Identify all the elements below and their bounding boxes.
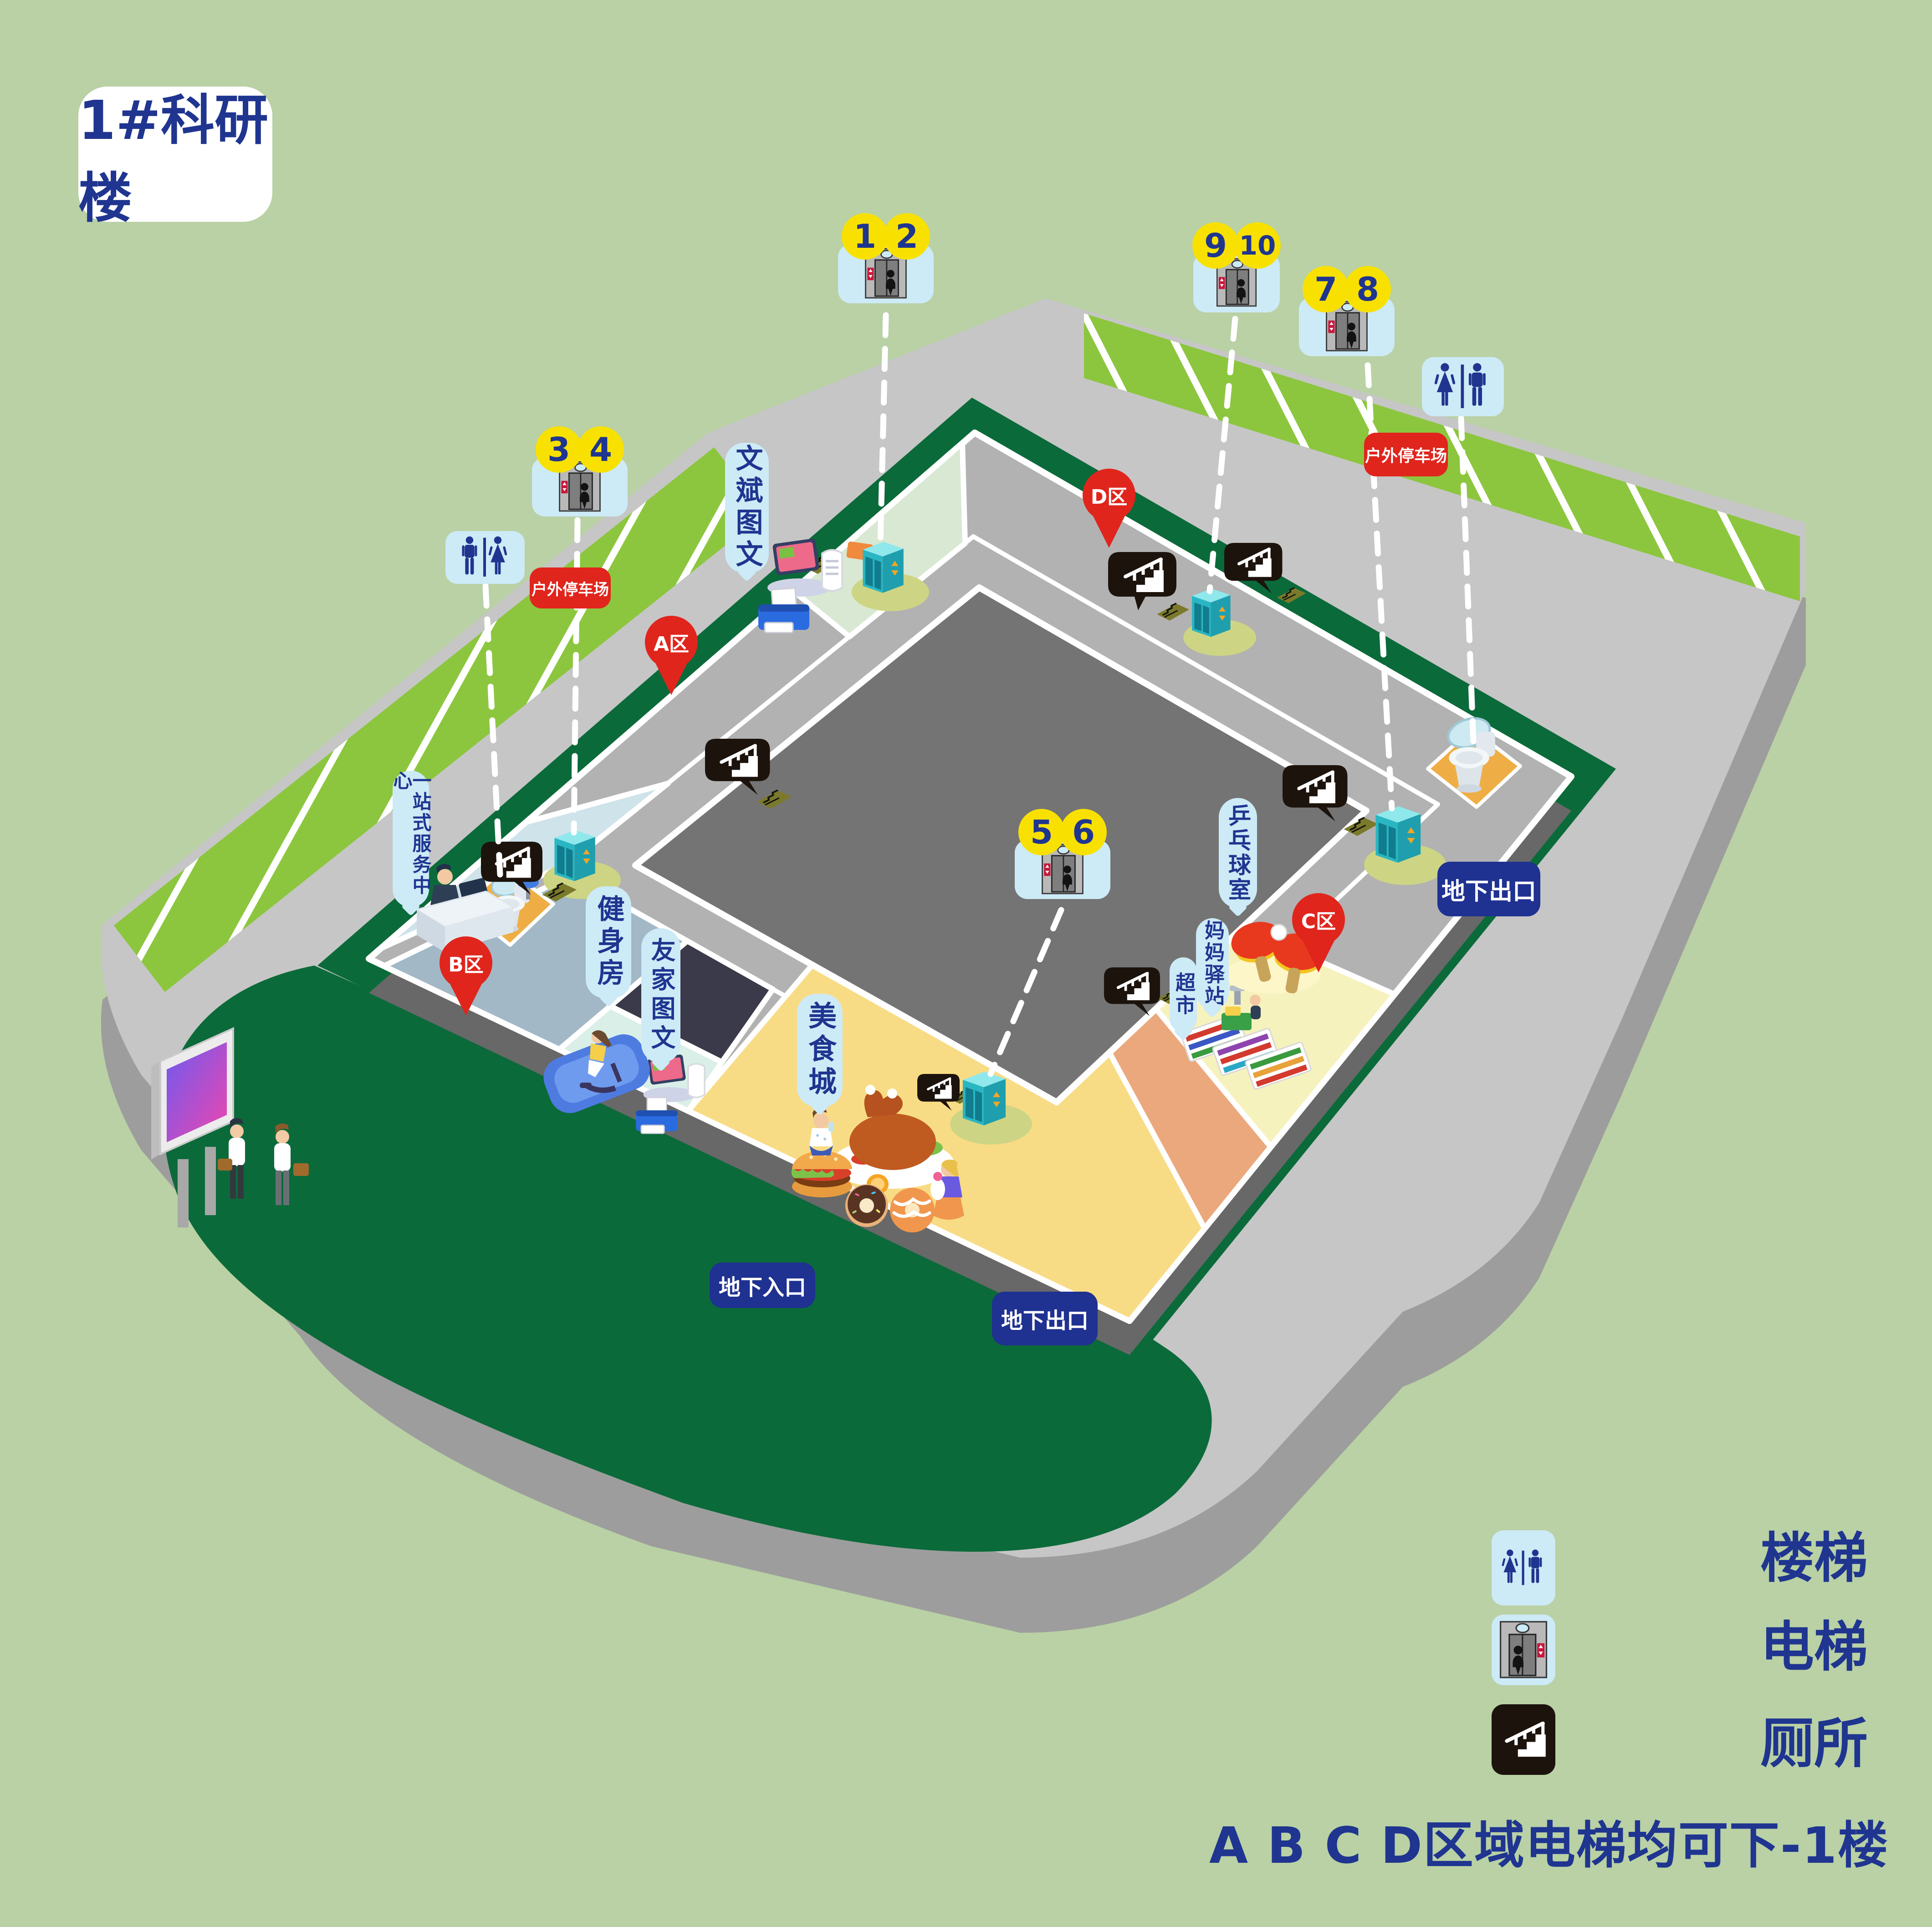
facility-label-gym[interactable]: 健身房 [586, 886, 631, 998]
exit-label-text: 地下出口 [1001, 1303, 1089, 1334]
legend-stairs-icon [1492, 1704, 1555, 1775]
elevator-marker-5-6[interactable]: 5 6 [1015, 809, 1110, 899]
zone-pin-a[interactable]: A区 [645, 616, 698, 695]
entrance-label-text: 地下入口 [719, 1269, 806, 1301]
toilet-marker-left[interactable] [445, 531, 525, 584]
facility-label-pingpong[interactable]: 乒乓球室 [1219, 798, 1257, 908]
elevator-number: 6 [1060, 809, 1107, 855]
legend-note: A B C D区域电梯均可下-1楼 [1209, 1804, 1901, 1877]
facility-label-service-center[interactable]: 一站式服务中心 [393, 771, 429, 907]
facility-text: 健身房 [595, 894, 622, 990]
elevator-number: 5 [1018, 809, 1065, 855]
toilet-icon [1425, 361, 1501, 412]
facility-text: 美食城 [806, 1001, 834, 1099]
lift-3d-d [1192, 588, 1231, 637]
elevator-marker-9-10[interactable]: 9 10 [1193, 222, 1280, 312]
elevator-number: 7 [1303, 266, 1349, 312]
legend-label: 电梯 [1760, 1603, 1868, 1681]
zone-label: D区 [1091, 480, 1128, 510]
elevator-marker-1-2[interactable]: 1 2 [838, 213, 934, 303]
facility-label-mama-station[interactable]: 妈妈驿站 [1196, 918, 1229, 1009]
zone-pin-c[interactable]: C区 [1292, 893, 1345, 972]
lift-3d-b [555, 830, 595, 881]
toilet-marker-right[interactable] [1422, 357, 1504, 416]
facility-text: 文斌图文 [733, 444, 761, 572]
facility-text: 乒乓球室 [1227, 804, 1249, 902]
facility-label-supermarket[interactable]: 超市 [1170, 957, 1197, 1032]
elevator-number: 2 [884, 213, 930, 260]
lift-3d-c [1376, 806, 1421, 863]
elevator-marker-3-4[interactable]: 3 4 [532, 426, 628, 516]
elevator-marker-7-8[interactable]: 7 8 [1299, 266, 1395, 356]
zone-label: B区 [448, 948, 484, 977]
parking-label-right[interactable]: 户外停车场 [1364, 433, 1448, 476]
exit-label-text: 地下出口 [1441, 872, 1536, 906]
zone-pin-b[interactable]: B区 [440, 936, 492, 1016]
facility-text: 超市 [1173, 972, 1193, 1017]
parking-label-left[interactable]: 户外停车场 [530, 567, 611, 608]
zone-pin-d[interactable]: D区 [1083, 469, 1135, 548]
legend: 厕所 电梯 楼梯 [1492, 1526, 1929, 1799]
underground-exit-right[interactable]: 地下出口 [1437, 862, 1540, 916]
toilet-icon [449, 535, 521, 580]
legend-toilet-icon [1492, 1530, 1555, 1605]
donut-glazed [890, 1188, 935, 1232]
elevator-number: 3 [536, 426, 582, 473]
page-title: 1#科研楼 [78, 87, 272, 222]
underground-entrance[interactable]: 地下入口 [710, 1263, 815, 1308]
parking-label-text: 户外停车场 [532, 577, 609, 599]
elevator-number: 9 [1192, 222, 1239, 269]
elevator-number: 4 [578, 426, 624, 473]
underground-exit-bottom[interactable]: 地下出口 [992, 1292, 1098, 1345]
building-name: 1#科研楼 [78, 77, 272, 232]
zone-label: C区 [1301, 905, 1336, 934]
lift-3d-a [863, 542, 904, 593]
facility-text: 妈妈驿站 [1202, 920, 1222, 1007]
donut-chocolate [845, 1184, 888, 1227]
facility-label-youjia[interactable]: 友家图文 [641, 928, 680, 1063]
elevator-number: 8 [1344, 266, 1391, 312]
elevator-number: 1 [842, 213, 888, 260]
legend-elevator-icon [1492, 1615, 1555, 1685]
elevator-number: 10 [1234, 222, 1281, 269]
parking-label-text: 户外停车场 [1365, 443, 1447, 466]
legend-label: 厕所 [1760, 1700, 1868, 1778]
lift-3d-56 [963, 1072, 1006, 1125]
facility-label-food-court[interactable]: 美食城 [797, 994, 843, 1107]
facility-label-wenbin[interactable]: 文斌图文 [725, 443, 769, 573]
zone-label: A区 [654, 628, 689, 657]
facility-text: 友家图文 [649, 937, 673, 1054]
facility-text: 一站式服务中心 [392, 771, 430, 907]
campus-map: 1#科研楼 1 2 3 4 5 6 7 8 9 10 A区 B区 [0, 0, 1932, 1927]
legend-label: 楼梯 [1760, 1514, 1868, 1592]
burger [792, 1151, 852, 1197]
